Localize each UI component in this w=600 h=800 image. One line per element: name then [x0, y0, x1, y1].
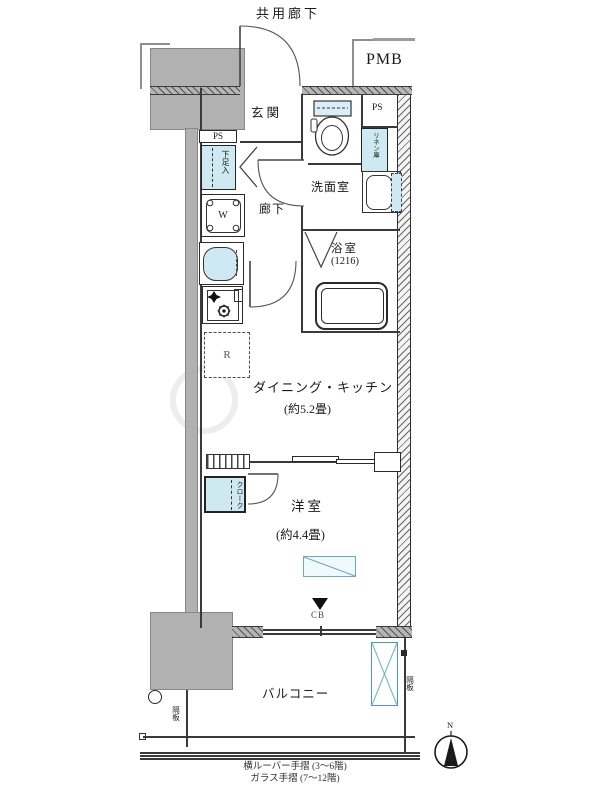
hallway-label: 廊下 [259, 203, 285, 215]
balcony-label: バルコニー [262, 688, 329, 701]
sliding-panel-2 [336, 459, 378, 464]
wall-hallway-right-upper [301, 94, 303, 160]
shoe-cabinet: 下足入 [201, 145, 236, 190]
dining-kitchen-label: ダイニング・キッチン [253, 381, 393, 394]
wall-bath-bottom [301, 331, 400, 333]
bedroom-window-symbol [303, 556, 356, 577]
shoe-cabinet-label: 下足入 [221, 150, 229, 174]
entrance-label: 玄関 [251, 107, 282, 120]
pmb-wall [352, 39, 354, 86]
closet-door-arc [248, 474, 278, 504]
stove-panel [234, 289, 243, 302]
closet-label: クローク [236, 481, 243, 509]
shoe-cabinet-divider [212, 148, 213, 187]
railing-note-line2: ガラス手摺 (7〜12階) [150, 775, 440, 785]
vanity-cabinet [391, 173, 402, 212]
compass-north-label: N [447, 721, 453, 730]
linen-closet-label: リネン庫 [371, 132, 378, 158]
window-center-tick [320, 626, 322, 636]
kitchen-sink-counter [199, 242, 244, 285]
railing-line-1 [140, 752, 420, 754]
railing-line-2 [140, 755, 420, 757]
plan-linework [0, 0, 600, 800]
balcony-edge-line [143, 736, 415, 738]
bathtub-inner [321, 288, 384, 324]
bedroom-closet: クローク [204, 476, 246, 513]
exterior-line [140, 43, 142, 89]
sliding-panel-1 [292, 456, 339, 462]
partition-counter [206, 454, 250, 469]
divider-right-label: 隔板 [406, 676, 414, 691]
wall-top-left [150, 86, 240, 95]
pipe-space-left: PS [199, 130, 237, 143]
window-sill-left [232, 626, 263, 638]
closet-divider [231, 480, 232, 510]
shoe-cabinet-folding-door [240, 147, 257, 187]
exterior-line [140, 43, 170, 45]
stove-counter [202, 286, 243, 324]
bathroom-size-label: (1216) [331, 257, 359, 268]
pmb-label: PMB [366, 52, 403, 68]
wall-hallway-right-lower [301, 206, 303, 332]
refrigerator-space: R [204, 332, 250, 378]
bathroom-label: 浴室 [331, 244, 358, 256]
cb-triangle [312, 598, 328, 610]
structure-block-bottom-left [150, 612, 233, 690]
balcony-edge-square [139, 733, 146, 740]
ps-left-label: PS [200, 131, 236, 142]
dk-door-arc [250, 261, 296, 307]
bedroom-label: 洋室 [291, 500, 324, 514]
wall-top-right [302, 86, 412, 95]
linen-closet: リネン庫 [361, 128, 388, 172]
bathtub [315, 282, 388, 330]
washroom-label: 洗面室 [311, 181, 350, 193]
wall-washroom-bath [301, 229, 400, 231]
structure-wall-column [185, 128, 198, 614]
washer-space: W [201, 194, 245, 237]
sliding-door-pocket [374, 452, 401, 472]
kitchen-faucet [236, 250, 237, 276]
balcony-drain-circle [148, 690, 162, 704]
window-sill-right [376, 626, 412, 638]
kitchen-sink [203, 247, 238, 281]
dining-kitchen-size-label: (約5.2畳) [284, 403, 331, 415]
vanity-basin [366, 175, 392, 210]
railing-note-line1: 横ルーバー手摺 (3〜6階) [150, 763, 440, 773]
fridge-label: R [205, 333, 249, 377]
washer-label: W [202, 195, 244, 236]
railing-line-3 [140, 758, 420, 760]
vanity-unit [362, 171, 401, 213]
balcony-left-divider-line [186, 690, 188, 747]
balcony-right-dot [401, 650, 407, 656]
ac-unit [371, 642, 398, 706]
entrance-step-line [240, 141, 302, 143]
pmb-wall [352, 39, 373, 41]
washroom-door-arc [258, 160, 304, 206]
entrance-door-arc [240, 26, 300, 86]
divider-left-label: 隔板 [172, 706, 180, 721]
bedroom-size-label: (約4.4畳) [276, 529, 325, 542]
common-corridor-label: 共用廊下 [256, 7, 320, 20]
cb-label: CB [311, 611, 325, 620]
ps-right-label: PS [372, 104, 383, 114]
floor-plan: 共用廊下 PMB 玄関 廊下 洗面室 浴室 (1216) ダイニング・キッチン … [0, 0, 600, 800]
wall-toilet-washroom [308, 163, 363, 165]
pmb-wall [373, 38, 415, 41]
toilet-icon [311, 101, 351, 155]
